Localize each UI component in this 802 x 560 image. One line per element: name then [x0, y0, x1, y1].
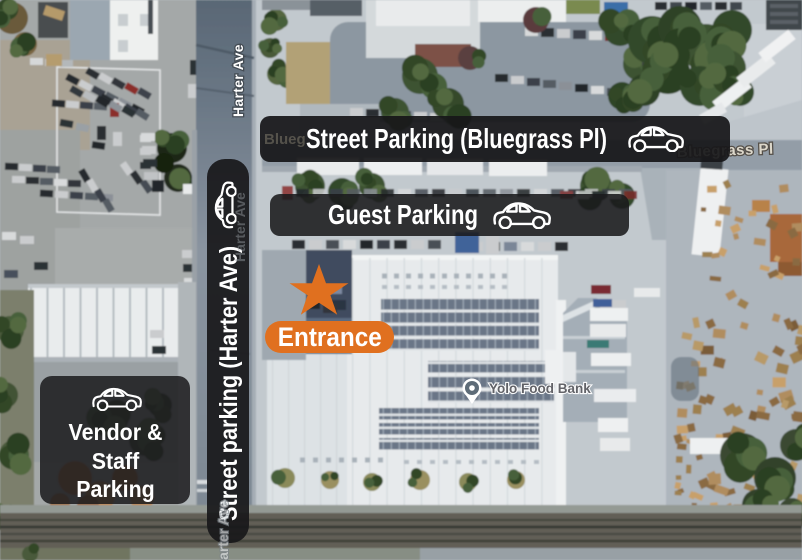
svg-text:Harter Ave: Harter Ave: [215, 500, 231, 560]
svg-text:Street parking (Harter Ave): Street parking (Harter Ave): [215, 246, 243, 521]
svg-text:Harter Ave: Harter Ave: [232, 192, 248, 262]
